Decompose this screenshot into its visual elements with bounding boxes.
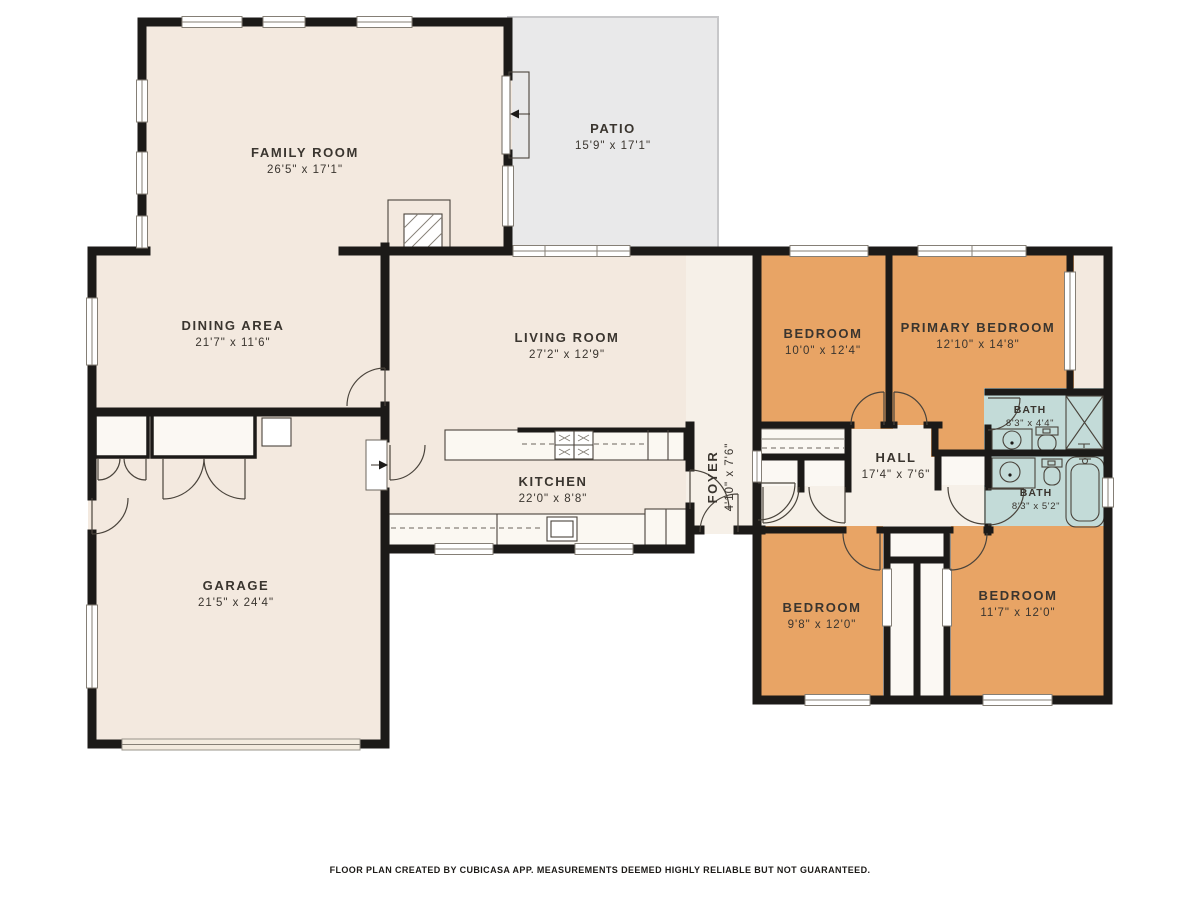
bath-1-label: BATH 8'3" x 4'4" (1006, 404, 1054, 430)
bath-2-label: BATH 8'3" x 5'2" (1012, 487, 1060, 513)
dining-area-label: DINING AREA 21'7" x 11'6" (181, 317, 284, 351)
garage-door (122, 739, 360, 750)
hall-closet-left (760, 459, 799, 486)
living-room-label: LIVING ROOM 27'2" x 12'9" (515, 329, 620, 363)
hall-closet-east (941, 456, 985, 485)
window (137, 152, 148, 194)
passage-opening (753, 451, 762, 482)
closet-opening (883, 569, 892, 626)
window (435, 544, 493, 555)
window (182, 17, 242, 28)
family-room-label: FAMILY ROOM 26'5" x 17'1" (251, 144, 359, 178)
garage-closet-2 (152, 414, 255, 457)
primary-bedroom-label: PRIMARY BEDROOM 12'10" x 14'8" (901, 319, 1056, 353)
patio-label: PATIO 15'9" x 17'1" (575, 120, 651, 154)
hall-label: HALL 17'4" x 7'6" (862, 449, 931, 483)
window (137, 216, 148, 248)
floorplan-page: FAMILY ROOM 26'5" x 17'1" PATIO 15'9" x … (0, 0, 1200, 900)
kitchen-label: KITCHEN 22'0" x 8'8" (519, 473, 588, 507)
kitchen-sink-icon (547, 517, 577, 541)
window (513, 246, 630, 257)
window (263, 17, 305, 28)
window (918, 246, 1026, 257)
window (357, 17, 412, 28)
footer-disclaimer: FLOOR PLAN CREATED BY CUBICASA APP. MEAS… (0, 865, 1200, 875)
window (983, 695, 1052, 706)
foyer-label: FOYER 4'10" x 7'6" (704, 443, 738, 512)
window (790, 246, 868, 257)
bedroom-1-label: BEDROOM 10'0" x 12'4" (783, 325, 862, 359)
window (87, 298, 98, 365)
window (1103, 478, 1114, 507)
window (503, 166, 514, 226)
closet-opening (943, 569, 952, 626)
window (805, 695, 870, 706)
hall-wardrobe (760, 429, 846, 455)
window (1065, 272, 1076, 370)
kitchen-island (445, 430, 688, 460)
water-heater-icon (262, 418, 291, 446)
window (575, 544, 633, 555)
window (87, 605, 98, 688)
window (137, 80, 148, 122)
bedroom-2-label: BEDROOM 9'8" x 12'0" (782, 599, 861, 633)
kitchen-counter (389, 509, 687, 546)
bedroom-3-label: BEDROOM 11'7" x 12'0" (978, 587, 1057, 621)
garage-closet-1 (95, 414, 148, 457)
family-room-floor (138, 18, 512, 255)
hall-closet-right (804, 459, 845, 486)
garage-label: GARAGE 21'5" x 24'4" (198, 577, 274, 611)
refrigerator-icon (645, 509, 687, 545)
stove-icon (555, 431, 593, 459)
